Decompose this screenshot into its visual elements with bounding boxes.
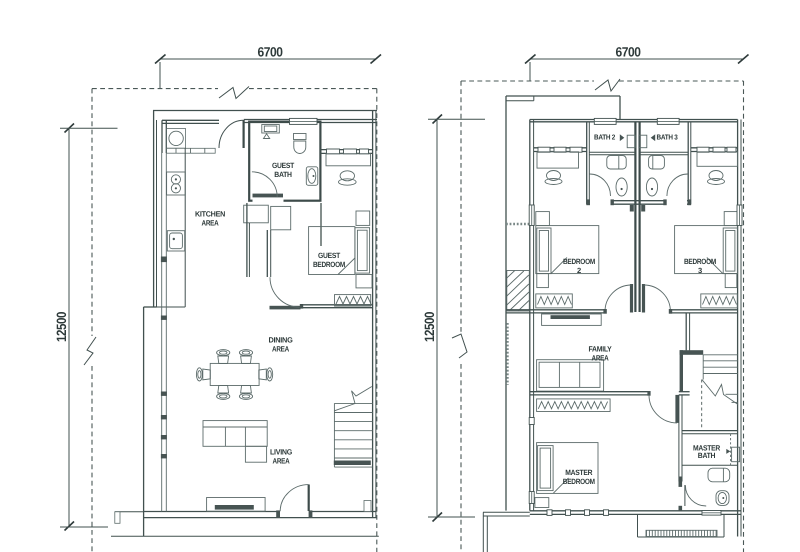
svg-text:DINING: DINING <box>269 336 293 345</box>
svg-text:BATH 2: BATH 2 <box>594 133 615 142</box>
svg-text:MASTER: MASTER <box>565 468 593 477</box>
svg-text:AREA: AREA <box>202 219 220 228</box>
svg-text:FAMILY: FAMILY <box>589 345 612 354</box>
svg-text:BEDROOM: BEDROOM <box>313 260 345 269</box>
svg-text:GUEST: GUEST <box>318 251 341 260</box>
svg-text:6700: 6700 <box>258 45 283 60</box>
svg-text:3: 3 <box>698 266 702 275</box>
svg-text:AREA: AREA <box>272 345 290 354</box>
svg-text:6700: 6700 <box>616 45 641 60</box>
svg-text:2: 2 <box>577 266 581 275</box>
svg-text:BEDROOM: BEDROOM <box>684 257 716 266</box>
svg-text:12500: 12500 <box>54 312 69 342</box>
svg-text:AREA: AREA <box>592 354 610 363</box>
svg-text:BATH: BATH <box>274 170 292 179</box>
svg-text:LIVING: LIVING <box>270 448 292 457</box>
svg-text:BATH 3: BATH 3 <box>657 133 678 142</box>
svg-text:BATH: BATH <box>698 451 716 460</box>
svg-text:AREA: AREA <box>273 457 291 466</box>
svg-text:KITCHEN: KITCHEN <box>195 210 225 219</box>
svg-text:12500: 12500 <box>422 312 437 342</box>
svg-text:BEDROOM: BEDROOM <box>563 257 595 266</box>
svg-text:GUEST: GUEST <box>272 161 295 170</box>
svg-text:BEDROOM: BEDROOM <box>563 477 595 486</box>
